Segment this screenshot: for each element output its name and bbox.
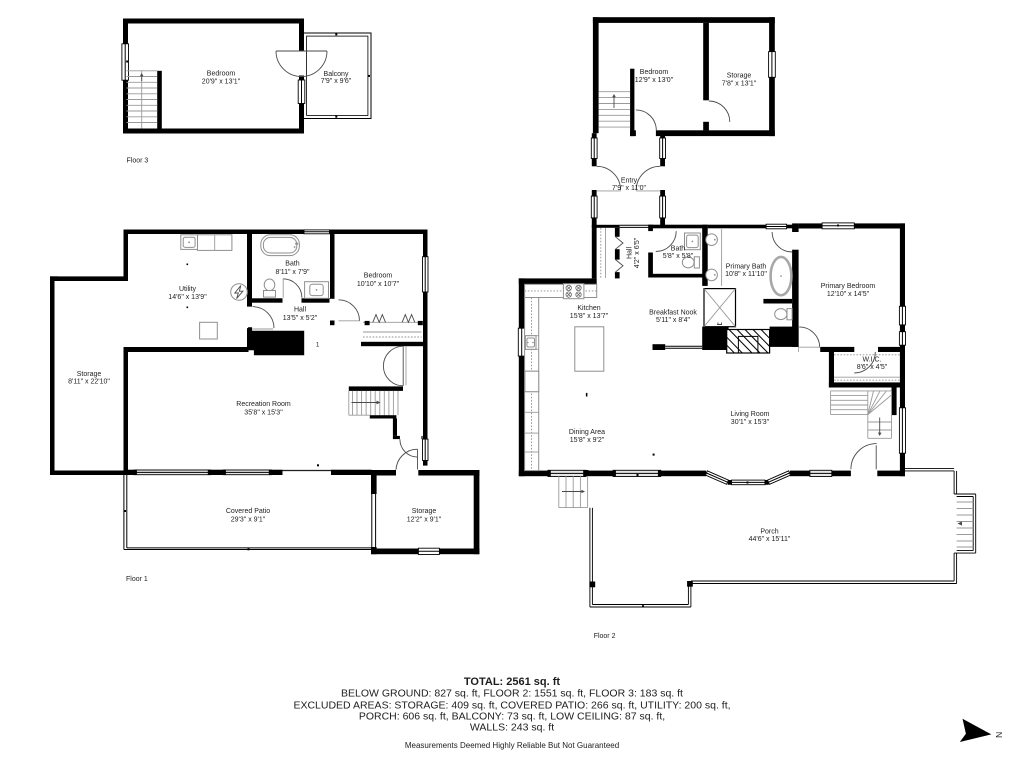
svg-text:1: 1 — [316, 343, 320, 349]
svg-text:Utility: Utility — [179, 286, 197, 293]
svg-text:8'11" x 22'10": 8'11" x 22'10" — [68, 378, 110, 385]
svg-text:Primary Bedroom: Primary Bedroom — [821, 283, 876, 290]
svg-text:4'2" x 6'5": 4'2" x 6'5" — [634, 237, 641, 268]
svg-text:Bath: Bath — [285, 260, 300, 267]
svg-text:WALLS: 243 sq. ft: WALLS: 243 sq. ft — [470, 721, 554, 733]
svg-text:Bath: Bath — [671, 246, 686, 253]
svg-text:7'9" x 9'6": 7'9" x 9'6" — [321, 78, 352, 85]
svg-text:10'10" x 10'7": 10'10" x 10'7" — [357, 281, 400, 288]
svg-text:Recreation Room: Recreation Room — [236, 401, 291, 408]
svg-text:Hall: Hall — [294, 306, 307, 313]
svg-text:Covered Patio: Covered Patio — [226, 508, 270, 515]
svg-text:5'8" x 5'8": 5'8" x 5'8" — [663, 253, 694, 260]
svg-text:10'8" x 11'10": 10'8" x 11'10" — [725, 271, 767, 278]
svg-text:14'6" x 13'9": 14'6" x 13'9" — [168, 294, 207, 301]
svg-text:Measurements Deemed Highly Rel: Measurements Deemed Highly Reliable But … — [405, 741, 619, 750]
svg-text:15'8" x 9'2": 15'8" x 9'2" — [570, 437, 605, 444]
svg-text:Hall: Hall — [627, 247, 634, 260]
svg-text:Porch: Porch — [760, 529, 778, 536]
svg-text:7'9" x 11'0": 7'9" x 11'0" — [612, 185, 646, 192]
svg-text:Storage: Storage — [412, 508, 437, 515]
svg-text:Storage: Storage — [727, 72, 752, 79]
svg-text:15'8" x 13'7": 15'8" x 13'7" — [570, 313, 609, 320]
svg-text:Floor 3: Floor 3 — [127, 158, 149, 165]
svg-text:Floor 2: Floor 2 — [594, 633, 616, 640]
svg-text:W.I.C.: W.I.C. — [862, 357, 881, 364]
svg-text:Living Room: Living Room — [731, 411, 770, 418]
svg-text:Kitchen: Kitchen — [577, 305, 600, 312]
svg-text:BELOW GROUND: 827 sq. ft, FLOO: BELOW GROUND: 827 sq. ft, FLOOR 2: 1551 … — [341, 688, 683, 700]
svg-text:12'9" x 13'0": 12'9" x 13'0" — [635, 77, 674, 84]
svg-text:30'1" x 15'3": 30'1" x 15'3" — [731, 419, 770, 426]
svg-text:8'11" x 7'9": 8'11" x 7'9" — [276, 269, 310, 276]
svg-text:Breakfast Nook: Breakfast Nook — [649, 309, 697, 316]
svg-text:EXCLUDED AREAS: STORAGE: 409 s: EXCLUDED AREAS: STORAGE: 409 sq. ft, COV… — [293, 699, 730, 711]
svg-text:12'10" x 14'5": 12'10" x 14'5" — [827, 291, 870, 298]
svg-text:20'9" x 13'1": 20'9" x 13'1" — [202, 79, 241, 86]
svg-text:13'5" x 5'2": 13'5" x 5'2" — [283, 315, 318, 322]
svg-text:35'8" x 15'3": 35'8" x 15'3" — [244, 409, 283, 416]
svg-text:Bedroom: Bedroom — [640, 69, 669, 76]
svg-text:12'2" x 9'1": 12'2" x 9'1" — [407, 517, 442, 524]
svg-text:Storage: Storage — [77, 371, 102, 378]
svg-text:Bedroom: Bedroom — [207, 70, 236, 77]
svg-text:Balcony: Balcony — [324, 71, 349, 78]
svg-text:44'6" x 15'11": 44'6" x 15'11" — [749, 536, 791, 543]
svg-text:5'11" x 8'4": 5'11" x 8'4" — [656, 317, 690, 324]
svg-text:Floor 1: Floor 1 — [126, 576, 148, 583]
svg-text:Entry: Entry — [621, 177, 638, 184]
svg-text:Primary Bath: Primary Bath — [726, 263, 767, 270]
svg-text:Bedroom: Bedroom — [364, 272, 393, 279]
svg-text:7'8" x 13'1": 7'8" x 13'1" — [722, 80, 757, 87]
svg-text:8'6" x 4'5": 8'6" x 4'5" — [857, 364, 888, 371]
svg-text:N: N — [994, 732, 1004, 738]
svg-text:Dining Area: Dining Area — [569, 429, 605, 436]
svg-text:TOTAL: 2561 sq. ft: TOTAL: 2561 sq. ft — [464, 676, 561, 688]
svg-text:29'3" x 9'1": 29'3" x 9'1" — [231, 517, 266, 524]
